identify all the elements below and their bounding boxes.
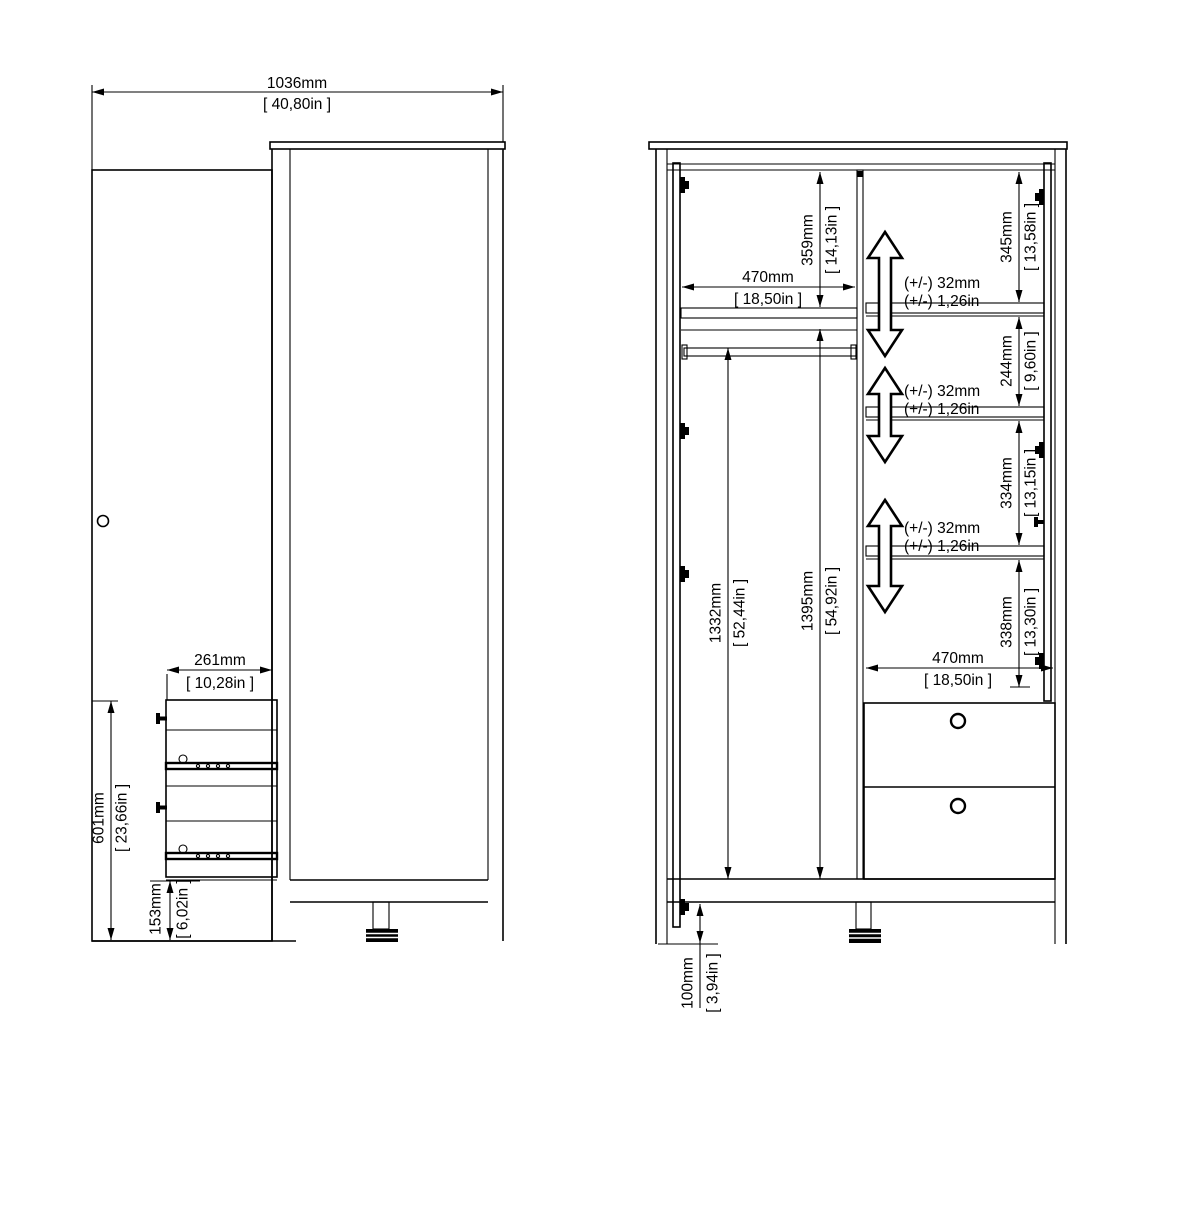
technical-drawing-page: 1036mm [ 40,80in ] xyxy=(0,0,1200,1200)
dim-100mm: 100mm xyxy=(680,957,697,1009)
dim-261mm-inches: [ 10,28in ] xyxy=(186,675,254,692)
dim-244mm: 244mm xyxy=(999,335,1016,387)
slide-holes xyxy=(196,764,229,857)
tolerance-1-mm: (+/-) 32mm xyxy=(904,275,980,292)
hinge-icon xyxy=(680,177,689,193)
dim-1036mm: 1036mm xyxy=(267,75,327,92)
dim-right-section-2: 244mm [ 9,60in ] xyxy=(999,317,1040,406)
left-shelf xyxy=(681,308,857,318)
front-top-panel xyxy=(649,142,1067,149)
dim-interior-height: 1395mm [ 54,92in ] xyxy=(800,329,841,879)
front-foot xyxy=(849,902,881,943)
dim-334mm: 334mm xyxy=(999,457,1016,509)
dim-334mm-inches: [ 13,15in ] xyxy=(1023,449,1040,517)
tolerance-3-in: (+/-) 1,26in xyxy=(904,538,979,555)
dim-1332mm: 1332mm xyxy=(708,583,725,643)
side-dim-drawer-unit-height: 601mm [ 23,66in ] xyxy=(91,701,131,940)
dim-153mm: 153mm xyxy=(148,883,165,935)
side-drawer-unit xyxy=(156,700,277,880)
slide-screw-2 xyxy=(179,845,187,853)
left-door-open-edge xyxy=(673,163,689,927)
dim-right-section-1: 345mm [ 13,58in ] xyxy=(999,172,1040,302)
dim-153mm-inches: [ 6,02in ] xyxy=(175,879,192,938)
side-dim-overall-width: 1036mm [ 40,80in ] xyxy=(92,75,503,170)
hanging-rod xyxy=(682,345,856,359)
side-dim-base-height: 153mm [ 6,02in ] xyxy=(148,879,201,940)
arrowhead-right xyxy=(491,89,503,96)
center-divider xyxy=(857,170,863,879)
dim-359mm: 359mm xyxy=(800,214,817,266)
side-top-panel xyxy=(270,142,505,149)
hinge-icon xyxy=(680,566,689,582)
dim-244mm-inches: [ 9,60in ] xyxy=(1023,331,1040,390)
side-carcass xyxy=(92,142,505,942)
dim-345mm: 345mm xyxy=(999,211,1016,263)
dim-470mm-drawers: 470mm xyxy=(932,650,984,667)
dim-470mm-left-inches: [ 18,50in ] xyxy=(734,291,802,308)
dim-470mm-left: 470mm xyxy=(742,269,794,286)
dim-345mm-inches: [ 13,58in ] xyxy=(1023,203,1040,271)
side-foot xyxy=(366,902,398,942)
drawer-knob-1 xyxy=(951,714,965,728)
divider-cam-fitting xyxy=(858,171,863,177)
dim-601mm-inches: [ 23,66in ] xyxy=(114,784,131,852)
tolerance-3-mm: (+/-) 32mm xyxy=(904,520,980,537)
dim-359mm-inches: [ 14,13in ] xyxy=(824,206,841,274)
dim-right-section-3: 334mm [ 13,15in ] xyxy=(999,421,1040,545)
shelf-adjust-arrow-1 xyxy=(868,232,902,356)
hinge-icon xyxy=(680,423,689,439)
side-dim-drawer-depth: 261mm [ 10,28in ] xyxy=(167,652,272,700)
dim-1332mm-inches: [ 52,44in ] xyxy=(732,579,749,647)
tolerance-2-in: (+/-) 1,26in xyxy=(904,401,979,418)
dim-1395mm: 1395mm xyxy=(800,571,817,631)
front-drawers xyxy=(864,703,1055,879)
left-compartment xyxy=(681,308,857,359)
tolerance-1-in: (+/-) 1,26in xyxy=(904,293,979,310)
door-knob-edge xyxy=(1034,517,1044,527)
dim-261mm: 261mm xyxy=(194,652,246,669)
front-view: 470mm [ 18,50in ] 359mm [ 14,13in ] 1395… xyxy=(649,142,1067,1013)
wardrobe-technical-drawing: 1036mm [ 40,80in ] xyxy=(0,0,1200,1200)
slide-screw-1 xyxy=(179,755,187,763)
dim-470mm-drawers-inches: [ 18,50in ] xyxy=(924,672,992,689)
dim-100mm-inches: [ 3,94in ] xyxy=(705,953,722,1012)
hinge-icon xyxy=(1035,189,1044,205)
door-knob-side xyxy=(98,516,109,527)
arrowhead-left xyxy=(92,89,104,96)
shelf-adjust-arrow-2 xyxy=(868,368,902,462)
drawer-stack xyxy=(864,703,1055,879)
dim-1395mm-inches: [ 54,92in ] xyxy=(824,567,841,635)
dim-hanging-height: 1332mm [ 52,44in ] xyxy=(708,348,749,879)
drawer-knob-2 xyxy=(951,799,965,813)
dim-338mm: 338mm xyxy=(999,596,1016,648)
side-view: 1036mm [ 40,80in ] xyxy=(91,75,506,942)
dim-338mm-inches: [ 13,30in ] xyxy=(1023,588,1040,656)
dim-foot-height: 100mm [ 3,94in ] xyxy=(680,904,722,1013)
dim-601mm: 601mm xyxy=(91,792,108,844)
dim-1036mm-inches: [ 40,80in ] xyxy=(263,96,331,113)
tolerance-2-mm: (+/-) 32mm xyxy=(904,383,980,400)
